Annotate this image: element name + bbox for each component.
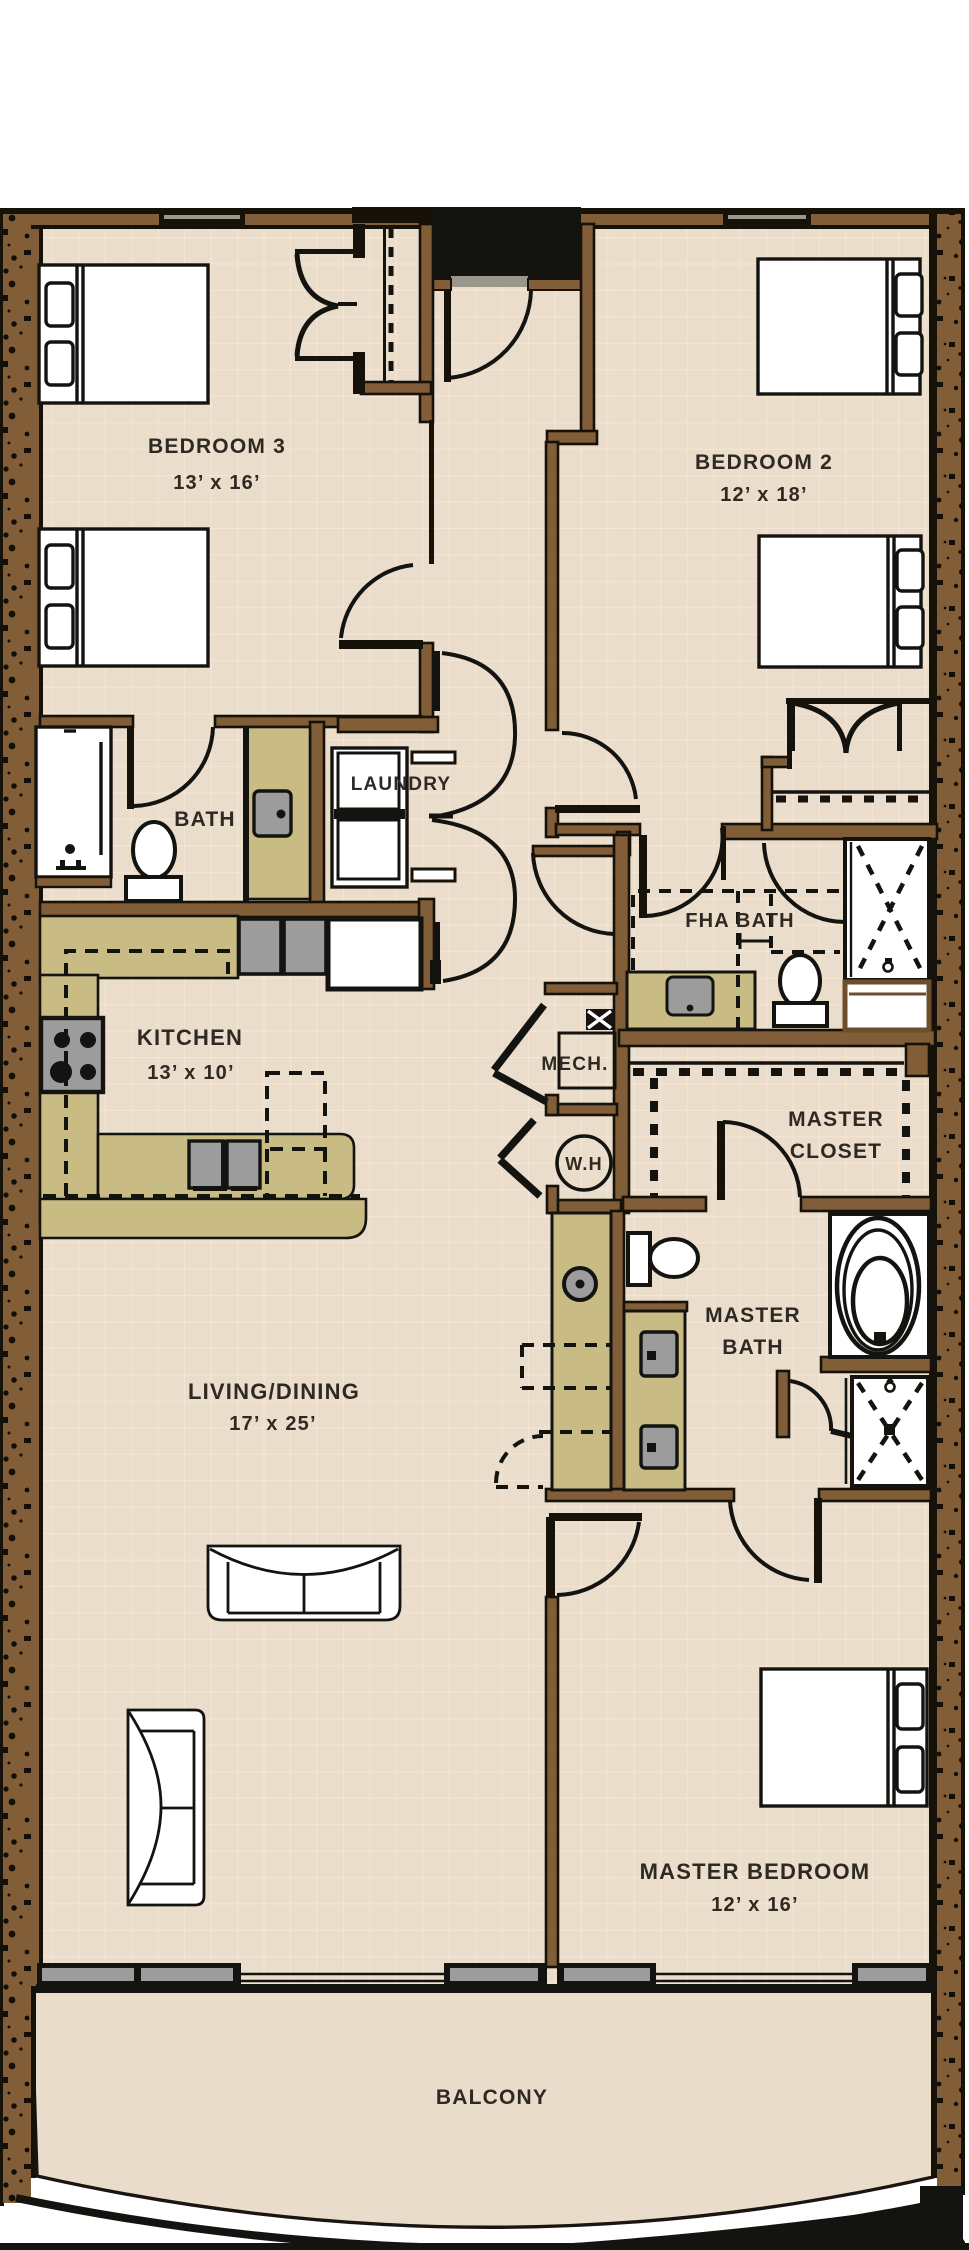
svg-text:MASTER: MASTER: [788, 1108, 884, 1131]
svg-text:12’ x 16’: 12’ x 16’: [711, 1894, 799, 1916]
svg-text:LIVING/DINING: LIVING/DINING: [188, 1379, 360, 1404]
svg-text:CLOSET: CLOSET: [790, 1140, 882, 1163]
svg-text:BEDROOM 2: BEDROOM 2: [695, 451, 833, 474]
svg-text:BEDROOM 3: BEDROOM 3: [148, 435, 286, 458]
svg-text:FHA BATH: FHA BATH: [685, 910, 795, 932]
svg-text:BATH: BATH: [722, 1336, 784, 1359]
svg-text:MASTER BEDROOM: MASTER BEDROOM: [640, 1859, 871, 1884]
svg-text:MECH.: MECH.: [541, 1054, 608, 1075]
svg-text:13’ x 16’: 13’ x 16’: [173, 472, 261, 494]
svg-text:KITCHEN: KITCHEN: [137, 1025, 243, 1050]
svg-text:13’ x 10’: 13’ x 10’: [147, 1062, 235, 1084]
svg-text:BALCONY: BALCONY: [436, 2086, 548, 2109]
svg-text:12’ x 18’: 12’ x 18’: [720, 484, 808, 506]
svg-text:BATH: BATH: [174, 808, 236, 831]
svg-text:W.H: W.H: [565, 1154, 603, 1174]
svg-text:LAUNDRY: LAUNDRY: [351, 774, 452, 795]
svg-text:MASTER: MASTER: [705, 1304, 801, 1327]
svg-text:17’ x 25’: 17’ x 25’: [229, 1413, 317, 1435]
